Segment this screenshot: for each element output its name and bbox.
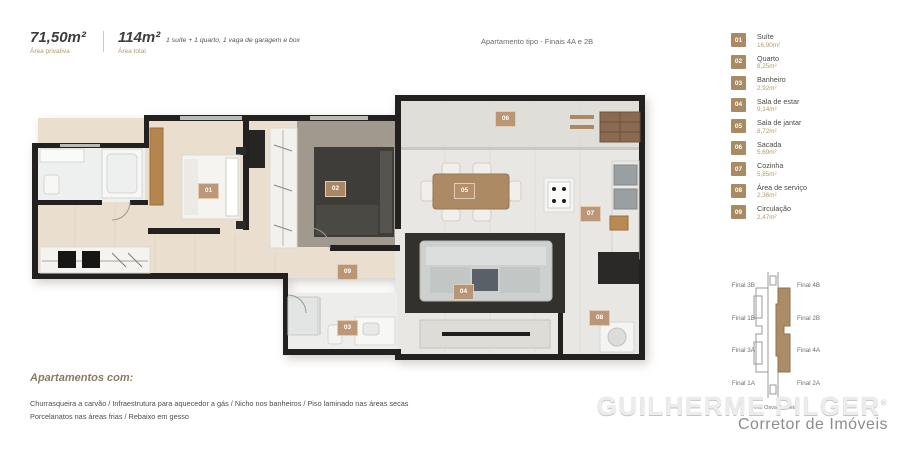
legend-number-badge: 09 (731, 205, 746, 219)
legend-texts: Suíte 16,90m² (757, 33, 780, 49)
unit-description: 1 suíte + 1 quarto, 1 vaga de garagem e … (166, 37, 300, 44)
legend-number-badge: 01 (731, 33, 746, 47)
legend-room-label: Sala de jantar (757, 119, 801, 127)
broker-logo: GUILHERME PILGER® Corretor de Imóveis (597, 393, 888, 433)
legend-number-badge: 04 (731, 98, 746, 112)
legend-texts: Cozinha 5,85m² (757, 162, 783, 178)
key-plan-unit-label: Final 2A (797, 380, 820, 387)
legend-item: 05 Sala de jantar 8,72m² (731, 119, 807, 134)
legend-room-area: 8,72m² (757, 128, 801, 135)
legend-room-area: 2,36m² (757, 192, 807, 199)
footer-features-line1: Churrasqueira a carvão / Infraestrutura … (30, 399, 408, 408)
header-divider (103, 31, 104, 52)
legend-item: 04 Sala de estar 9,14m² (731, 98, 807, 113)
footer-features-line2: Porcelanatos nas áreas frias / Rebaixo e… (30, 412, 189, 421)
legend-texts: Sacada 5,69m² (757, 141, 781, 157)
key-plan-unit-label: Final 3A (715, 347, 755, 354)
legend-room-label: Suíte (757, 33, 780, 41)
legend-room-area: 8,25m² (757, 63, 779, 70)
legend-room-label: Sala de estar (757, 98, 799, 106)
legend-item: 07 Cozinha 5,85m² (731, 162, 807, 177)
legend-room-label: Área de serviço (757, 184, 807, 192)
legend-number-badge: 07 (731, 162, 746, 176)
legend-room-label: Banheiro (757, 76, 786, 84)
legend-number-badge: 06 (731, 141, 746, 155)
living-furniture (405, 233, 565, 348)
hall-closet (40, 247, 150, 273)
floorplan-image: 010203040506070809 (30, 85, 648, 365)
key-plan-unit-label: Final 4B (797, 282, 820, 289)
legend-texts: Circulação 2,47m² (757, 205, 791, 221)
legend-room-area: 5,69m² (757, 149, 781, 156)
legend-item: 06 Sacada 5,69m² (731, 141, 807, 156)
legend-room-area: 16,90m² (757, 42, 780, 49)
key-plan-highlighted-units (776, 288, 790, 372)
plan-title: Apartamento tipo - Finais 4A e 2B (481, 37, 593, 46)
legend-number-badge: 08 (731, 184, 746, 198)
legend-number-badge: 02 (731, 55, 746, 69)
legend-texts: Quarto 8,25m² (757, 55, 779, 71)
key-plan-unit-label: Final 1A (715, 380, 755, 387)
legend-item: 02 Quarto 8,25m² (731, 55, 807, 70)
footer-heading: Apartamentos com: (30, 372, 133, 384)
legend-room-area: 5,85m² (757, 171, 783, 178)
legend-room-area: 2,92m² (757, 85, 786, 92)
key-plan-unit-label: Final 3B (715, 282, 755, 289)
legend-texts: Banheiro 2,92m² (757, 76, 786, 92)
legend-item: 03 Banheiro 2,92m² (731, 76, 807, 91)
key-plan-unit-label: Final 4A (797, 347, 820, 354)
private-area-block: 71,50m² Área privativa (30, 30, 86, 55)
registered-mark: ® (881, 398, 888, 407)
legend-room-area: 9,14m² (757, 106, 799, 113)
legend: 01 Suíte 16,90m² 02 Quarto 8,25m² 03 Ban… (731, 33, 807, 220)
total-area-block: 114m² Área total (118, 30, 160, 55)
key-plan-unit-label: Final 1B (715, 315, 755, 322)
legend-number-badge: 03 (731, 76, 746, 90)
private-area-label: Área privativa (30, 48, 86, 55)
legend-texts: Sala de estar 9,14m² (757, 98, 799, 114)
legend-texts: Área de serviço 2,36m² (757, 184, 807, 200)
legend-room-area: 2,47m² (757, 214, 791, 221)
total-area-label: Área total (118, 48, 160, 55)
key-plan-unit-label: Final 2B (797, 315, 820, 322)
page: 71,50m² Área privativa 114m² Área total … (0, 0, 900, 450)
key-plan-footprint (753, 272, 793, 398)
legend-room-label: Circulação (757, 205, 791, 213)
legend-item: 01 Suíte 16,90m² (731, 33, 807, 48)
legend-room-label: Sacada (757, 141, 781, 149)
legend-item: 09 Circulação 2,47m² (731, 205, 807, 220)
floorplan-drawing (30, 85, 648, 365)
legend-texts: Sala de jantar 8,72m² (757, 119, 801, 135)
private-area-value: 71,50m² (30, 30, 86, 45)
legend-room-label: Cozinha (757, 162, 783, 170)
total-area-value: 114m² (118, 30, 160, 45)
legend-room-label: Quarto (757, 55, 779, 63)
legend-number-badge: 05 (731, 119, 746, 133)
legend-item: 08 Área de serviço 2,36m² (731, 184, 807, 199)
